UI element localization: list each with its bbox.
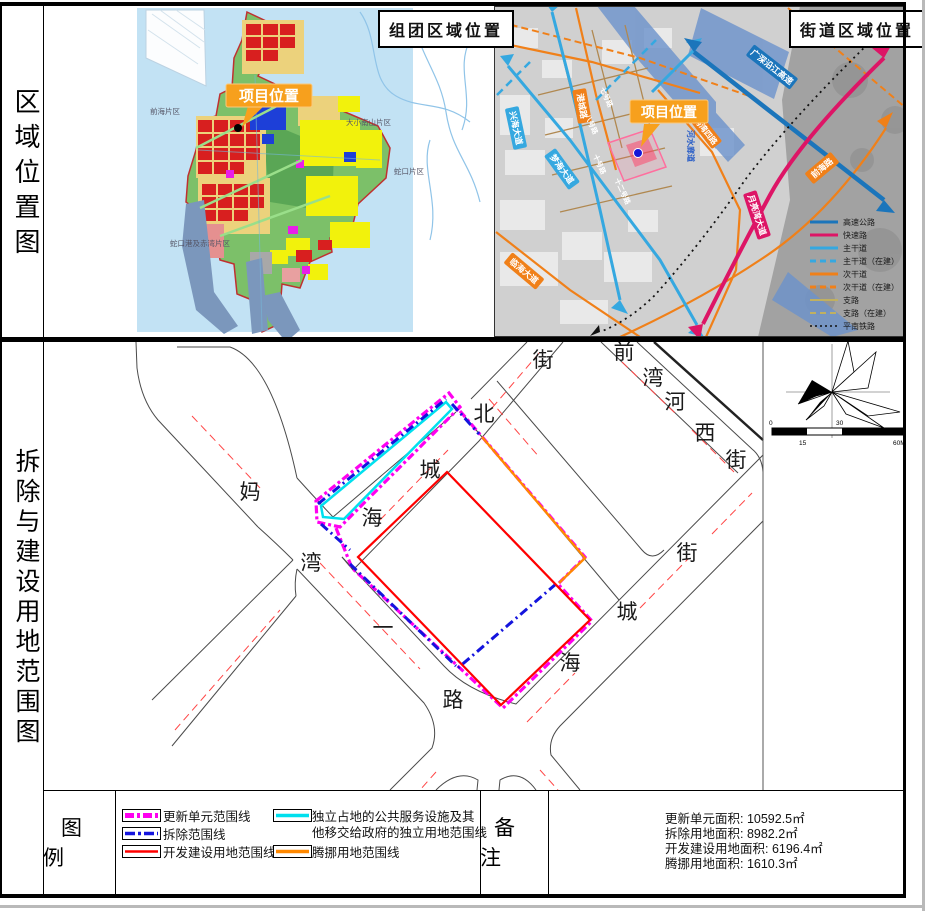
svg-text:高速公路: 高速公路 [843,217,875,227]
svg-text:北: 北 [474,402,495,426]
legend-label: 更新单元范围线 [163,806,251,825]
section-divider [0,337,906,342]
section-title-demolition: 拆除与建设用地范围图 [8,448,44,768]
svg-text:15: 15 [799,440,807,447]
legend-swatch-development [122,845,161,858]
svg-text:支路: 支路 [843,295,859,305]
project-callout-label: 项目位置 [239,87,299,105]
remarks-heading: 备注 [480,790,548,894]
legend-label: 拆除范围线 [163,824,226,843]
svg-text:0: 0 [769,420,773,427]
demolition-boundary [318,399,556,668]
project-dot [634,149,643,158]
cluster-map: 前海片区 大小南山片区 蛇口片区 蛇口港及赤湾片区 项目位置 [44,6,493,337]
legend-label-line2: 他移交给政府的独立用地范围线 [312,822,487,841]
legend-swatch-update-unit [122,809,161,822]
svg-text:湾: 湾 [643,366,664,390]
legend-heading: 图例 [43,790,115,894]
plan-sheet: 前海片区 大小南山片区 蛇口片区 蛇口港及赤湾片区 项目位置 [0,0,931,911]
svg-text:平南铁路: 平南铁路 [843,321,875,331]
cluster-map-title: 组团区域位置 [378,10,514,48]
svg-text:支路（在建）: 支路（在建） [843,308,891,318]
svg-text:主干道（在建）: 主干道（在建） [843,256,899,266]
road-centerlines [175,352,752,790]
street-map: 兴海大道 梦海大道 临海大道 港城路 广深沿江高速 月亮湾大道 前海路 妈湾四路… [494,6,906,337]
left-border [0,2,2,898]
svg-text:路: 路 [443,688,464,712]
area-label: 大小南山片区 [346,117,391,127]
svg-text:街: 街 [726,448,747,472]
legend-swatch-relocation [273,845,312,858]
legend-swatch-public-facility [273,809,312,822]
legend-label: 开发建设用地范围线 [163,842,276,861]
svg-text:海: 海 [560,651,581,675]
page-edge-bottom [0,905,925,908]
svg-text:城: 城 [617,600,638,624]
legend-row-top-line [43,790,904,791]
svg-text:妈: 妈 [240,480,261,504]
svg-text:街: 街 [677,541,698,565]
svg-text:前: 前 [614,342,635,364]
north-label: N [826,342,834,345]
project-dot [234,124,242,132]
svg-text:30: 30 [836,420,844,427]
remark-line: 腾挪用地面积: 1610.3㎡ [665,853,798,872]
street-name-labels: 妈 湾 一 路 海 城 北 街 前 湾 河 西 街 海 城 街 [240,342,747,712]
svg-text:次干道（在建）: 次干道（在建） [843,282,899,292]
page-edge-right [922,0,925,911]
remarks-cell-divider-b [548,790,549,894]
area-label: 蛇口港及赤湾片区 [170,238,230,248]
svg-text:次干道: 次干道 [843,269,867,279]
svg-text:城: 城 [420,458,441,482]
bottom-border [0,894,906,898]
project-callout-label: 项目位置 [641,104,697,120]
section-title-region: 区域位置图 [8,88,45,278]
svg-text:一: 一 [373,616,394,640]
legend-label: 腾挪用地范围线 [312,842,400,861]
top-border [0,2,906,6]
svg-text:主干道: 主干道 [843,243,867,253]
area-label: 前海片区 [150,106,180,116]
right-border [903,2,906,898]
svg-text:西: 西 [695,421,716,445]
scale-bar: 0 15 30 60M [769,420,904,447]
legend-swatch-demolition [122,827,161,840]
area-label: 蛇口片区 [394,166,424,176]
svg-text:湾: 湾 [301,551,322,575]
svg-text:河: 河 [665,390,686,414]
svg-text:快速路: 快速路 [843,230,867,240]
svg-text:海: 海 [362,506,383,530]
update-unit-boundary [316,393,592,708]
legend-cell-divider [115,790,116,894]
demolition-plan: 妈 湾 一 路 海 城 北 街 前 湾 河 西 街 海 城 街 [44,342,904,790]
svg-text:街: 街 [533,348,554,372]
svg-text:河水廊道: 河水廊道 [686,130,696,162]
